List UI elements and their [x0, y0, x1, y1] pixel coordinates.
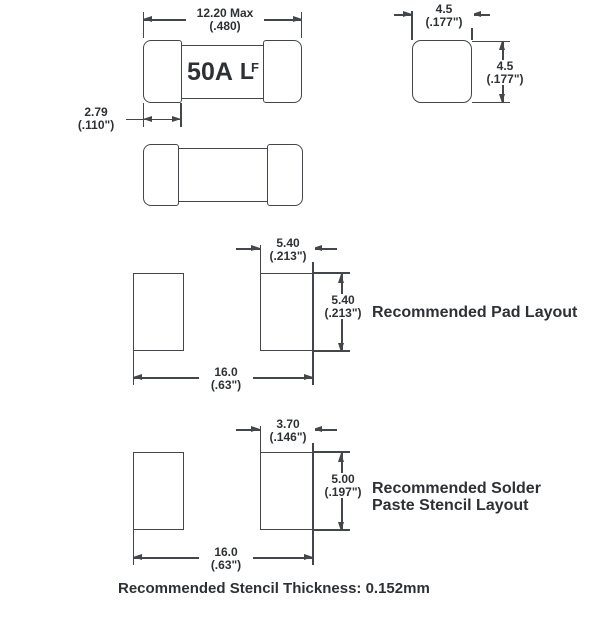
stencil-span-dimension-label: 16.0 (.63") — [199, 546, 253, 571]
stencil-height-arrowhead-top — [338, 453, 344, 462]
stencil-layout-caption: Recommended Solder Paste Stencil Layout — [372, 480, 541, 514]
pad-span-dimension-label: 16.0 (.63") — [199, 366, 253, 391]
pad-height-dimension-label: 5.40 (.213") — [316, 294, 370, 319]
fuse-amperage-marking: 50A — [187, 60, 233, 85]
end-width-extension-line-left — [411, 11, 413, 40]
stencil-height-arrowhead-bottom — [338, 522, 344, 531]
cap-width-mm: 2.79 — [68, 106, 124, 119]
stencil-layout-caption-line1: Recommended Solder — [372, 480, 541, 497]
stencil-span-mm: 16.0 — [201, 546, 251, 559]
end-height-dimension-label: 4.5 (.177") — [482, 60, 528, 85]
littelfuse-logo: LF — [240, 60, 259, 84]
pad-layout-caption: Recommended Pad Layout — [372, 304, 577, 322]
cap-width-inch: (.110") — [68, 119, 124, 132]
pad-span-arrowhead-right — [304, 374, 313, 380]
fuse-front-end-cap-right — [263, 40, 302, 103]
pad-span-mm: 16.0 — [201, 366, 251, 379]
stencil-height-inch: (.197") — [318, 486, 368, 499]
end-height-mm: 4.5 — [484, 60, 526, 73]
pad-span-inch: (.63") — [201, 379, 251, 392]
fuse-end-view — [412, 40, 472, 103]
body-length-arrowhead-right — [293, 16, 302, 22]
stencil-width-arrowhead-left — [251, 426, 260, 432]
cap-width-arrowhead-left — [143, 116, 152, 122]
fuse-mechanical-drawing: 12.20 Max (.480) 50A LF 2.79 (.110") 4.5… — [0, 0, 600, 632]
body-length-inch: (.480) — [188, 20, 262, 33]
stencil-layout-caption-line2: Paste Stencil Layout — [372, 497, 541, 514]
pad-width-mm: 5.40 — [263, 237, 313, 250]
body-length-dimension-label: 12.20 Max (.480) — [186, 7, 264, 32]
stencil-height-dimension-label: 5.00 (.197") — [316, 473, 370, 498]
stencil-aperture-left — [133, 452, 184, 530]
fuse-marking: 50A LF — [181, 45, 265, 99]
cap-width-arrowhead-right — [172, 116, 181, 122]
body-length-mm: 12.20 Max — [188, 7, 262, 20]
logo-letter-f: F — [251, 60, 259, 75]
stencil-height-mm: 5.00 — [318, 473, 368, 486]
pad-height-arrowhead-bottom — [338, 343, 344, 352]
stencil-width-dimension-label: 3.70 (.146") — [261, 418, 315, 443]
cap-width-dimension-label: 2.79 (.110") — [66, 106, 126, 131]
pad-height-extension-line-top — [313, 272, 350, 274]
pad-width-arrowhead-left — [251, 245, 260, 251]
stencil-span-arrowhead-right — [304, 554, 313, 560]
stencil-thickness-note: Recommended Stencil Thickness: 0.152mm — [118, 580, 430, 597]
pad-left — [133, 273, 184, 351]
fuse-front-end-cap-left — [143, 40, 182, 103]
stencil-aperture-right — [260, 452, 313, 530]
stencil-span-arrowhead-left — [133, 554, 142, 560]
end-height-arrowhead-bottom — [499, 94, 505, 103]
fuse-side-end-cap-right — [267, 144, 303, 206]
stencil-span-inch: (.63") — [201, 559, 251, 572]
body-length-arrowhead-left — [143, 16, 152, 22]
end-height-arrowhead-top — [499, 41, 505, 50]
fuse-side-end-cap-left — [143, 144, 179, 206]
pad-height-arrowhead-top — [338, 274, 344, 283]
pad-height-mm: 5.40 — [318, 294, 368, 307]
end-width-dimension-label: 4.5 (.177") — [414, 3, 474, 28]
end-width-mm: 4.5 — [416, 3, 472, 16]
fuse-side-body — [177, 148, 269, 202]
stencil-height-extension-line-top — [313, 451, 350, 453]
pad-height-inch: (.213") — [318, 307, 368, 320]
pad-span-arrowhead-left — [133, 374, 142, 380]
stencil-height-extension-line-bottom — [313, 529, 350, 531]
stencil-width-mm: 3.70 — [263, 418, 313, 431]
end-height-inch: (.177") — [484, 73, 526, 86]
pad-right — [260, 273, 313, 351]
stencil-width-inch: (.146") — [263, 431, 313, 444]
pad-width-inch: (.213") — [263, 250, 313, 263]
end-width-inch: (.177") — [416, 16, 472, 29]
pad-width-dimension-label: 5.40 (.213") — [261, 237, 315, 262]
pad-height-extension-line-bottom — [313, 350, 350, 352]
